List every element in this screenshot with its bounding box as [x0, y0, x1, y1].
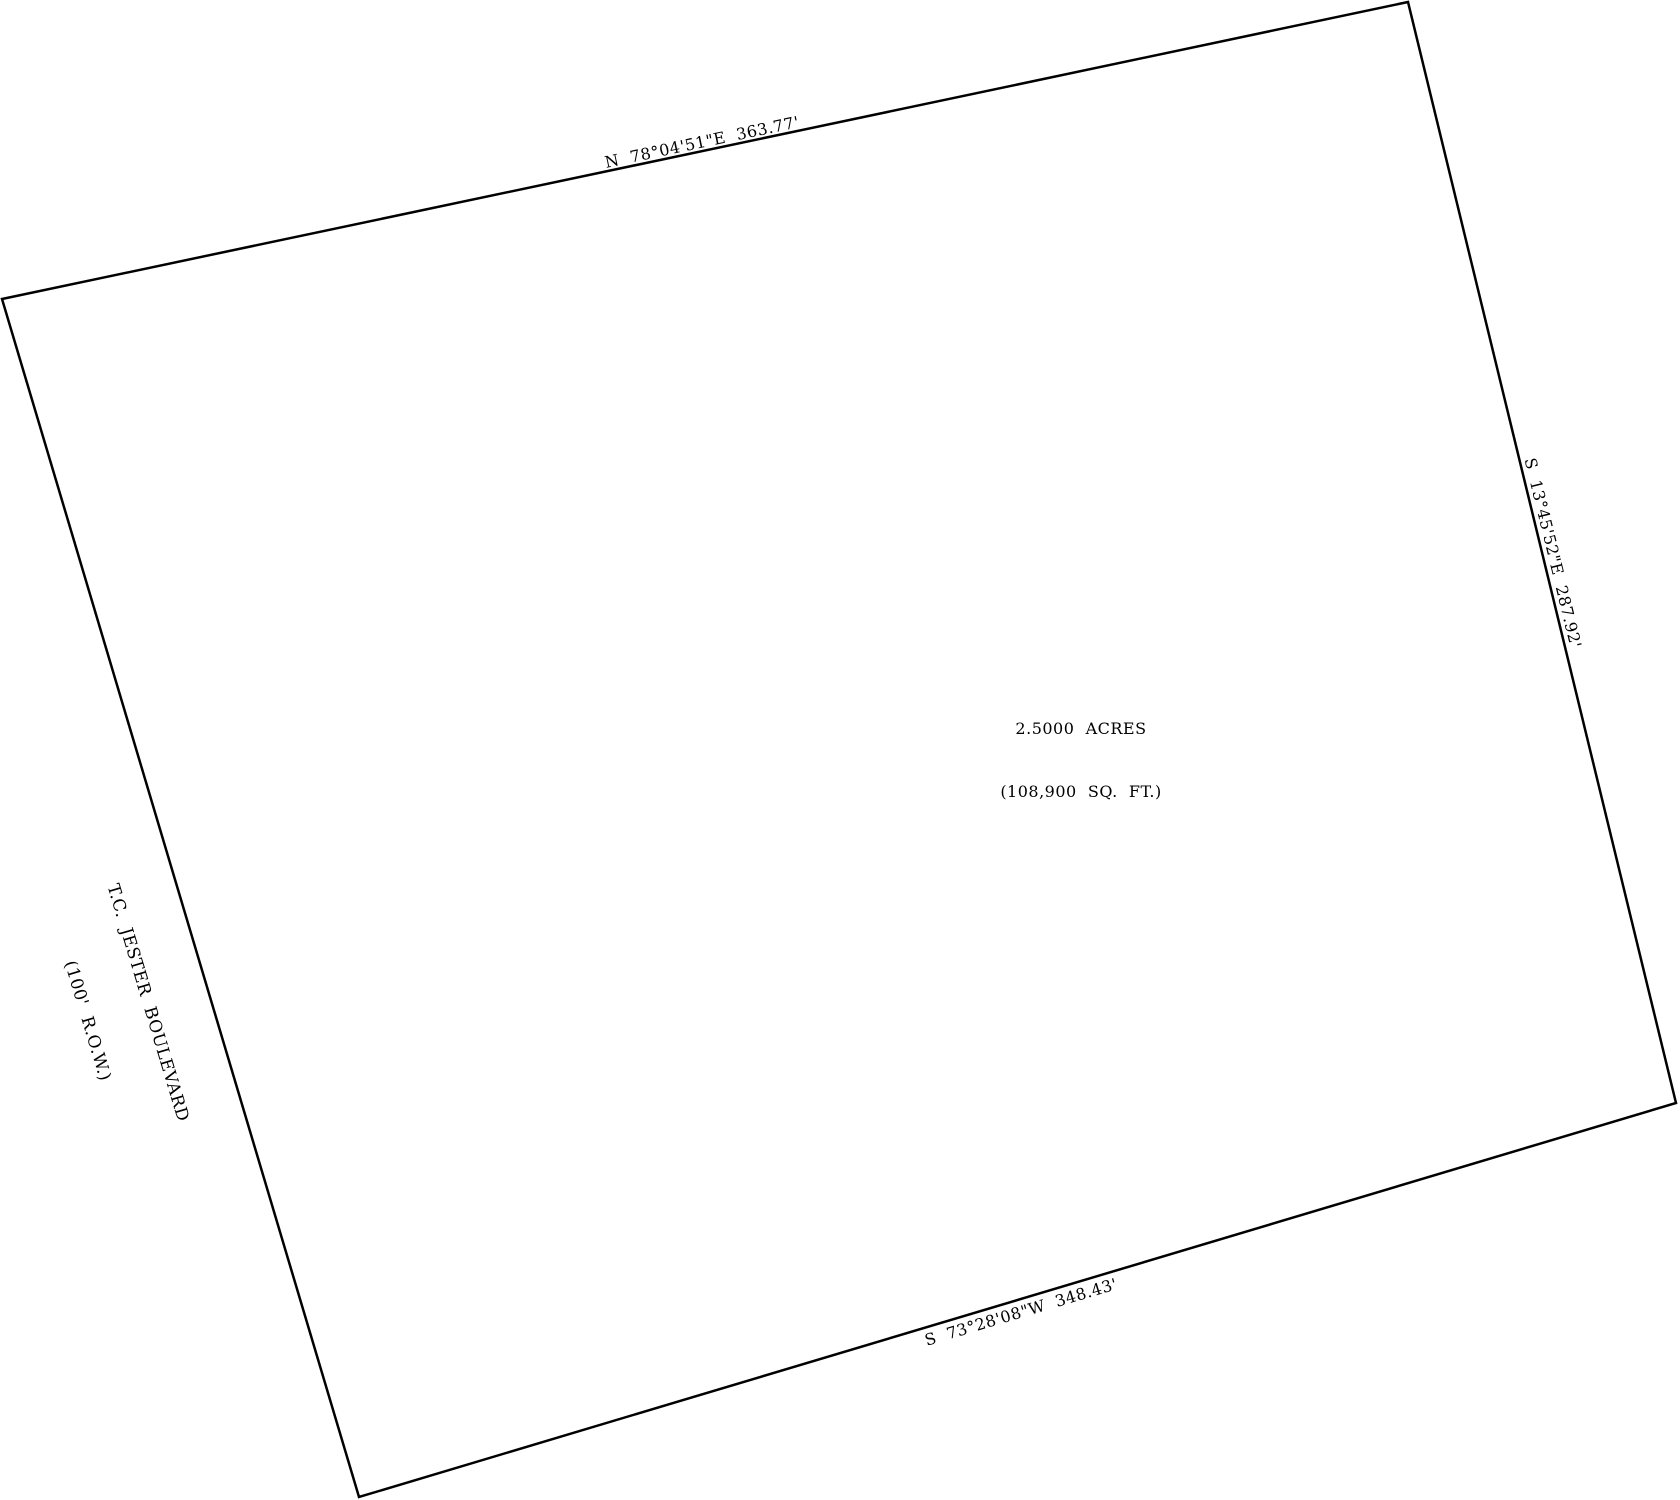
- parcel-area-acres: 2.5000 ACRES: [1000, 718, 1161, 739]
- parcel-area-sqft: (108,900 SQ. FT.): [1000, 781, 1161, 802]
- parcel-boundary-polygon: [2, 2, 1676, 1497]
- plat-canvas: N 78°04'51"E 363.77' S 13°45'52"E 287.92…: [0, 0, 1680, 1500]
- parcel-area-label: 2.5000 ACRES (108,900 SQ. FT.): [1000, 676, 1161, 844]
- parcel-boundary-drawing: [0, 0, 1680, 1500]
